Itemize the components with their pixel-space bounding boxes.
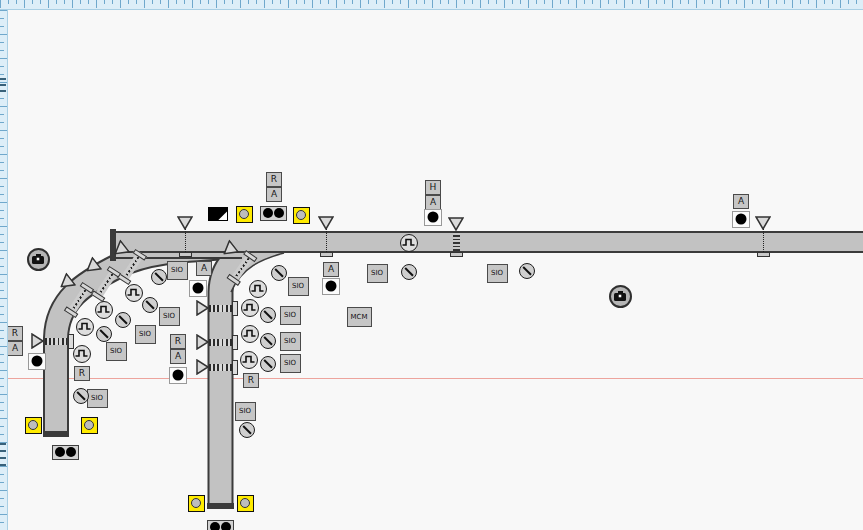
ruler-section-mark — [0, 84, 6, 86]
slash-icon — [522, 266, 531, 275]
indicator-dot-box[interactable] — [322, 278, 340, 295]
slash-detector-symbol[interactable] — [271, 265, 287, 281]
pulse-waveform-icon — [250, 281, 265, 296]
lamp-ring-icon — [28, 420, 38, 430]
sio-module-box[interactable]: SIO — [280, 332, 301, 351]
slash-detector-symbol[interactable] — [73, 388, 89, 404]
yellow-lamp-marker[interactable] — [236, 206, 253, 223]
double-indicator-box[interactable] — [260, 206, 287, 221]
signal-box-R[interactable]: R — [170, 334, 186, 349]
detector-bracket[interactable] — [232, 360, 238, 375]
double-indicator-box[interactable] — [52, 445, 79, 460]
slash-icon — [154, 272, 163, 281]
detector-trigger-triangle[interactable] — [196, 359, 209, 375]
detector-hatch-band[interactable] — [453, 232, 460, 251]
sio-module-box[interactable]: SIO — [159, 307, 180, 326]
slash-icon — [263, 336, 272, 345]
detector-road-cap[interactable] — [450, 252, 463, 257]
pulse-detector-symbol[interactable] — [400, 234, 418, 252]
sio-module-box[interactable]: SIO — [288, 277, 309, 296]
triangle-icon — [318, 216, 334, 230]
sio-module-box[interactable]: SIO — [87, 389, 108, 408]
vms-flag-icon[interactable] — [208, 207, 228, 221]
pulse-waveform-icon — [74, 346, 89, 361]
signal-box-R[interactable]: R — [243, 373, 259, 388]
pulse-waveform-icon — [242, 326, 257, 341]
pulse-waveform-icon — [77, 319, 92, 334]
slash-icon — [242, 425, 251, 434]
sio-module-box[interactable]: SIO — [367, 264, 388, 283]
ruler-section-mark — [0, 450, 6, 452]
signal-box-A[interactable]: A — [196, 261, 212, 276]
ruler-section-mark — [0, 443, 6, 445]
slash-icon — [99, 329, 108, 338]
black-dot-icon — [326, 281, 337, 292]
sio-module-box[interactable]: SIO — [135, 325, 156, 344]
pulse-detector-symbol[interactable] — [249, 280, 267, 298]
indicator-dot-box[interactable] — [732, 211, 750, 228]
signal-head-triangle[interactable] — [755, 216, 771, 230]
signal-drop-line — [185, 229, 186, 252]
yellow-lamp-marker[interactable] — [188, 495, 205, 512]
sio-module-box[interactable]: SIO — [106, 342, 127, 361]
detector-bracket[interactable] — [232, 301, 238, 316]
road-branch-left-end-cap — [43, 431, 69, 437]
detector-bracket[interactable] — [68, 334, 74, 349]
detector-road-cap[interactable] — [179, 252, 192, 257]
signal-box-H[interactable]: H — [425, 180, 441, 195]
lamp-ring-icon — [239, 209, 249, 219]
pulse-detector-symbol[interactable] — [240, 351, 258, 369]
signal-drop-line — [763, 229, 764, 252]
yellow-lamp-marker[interactable] — [81, 417, 98, 434]
signal-head-triangle[interactable] — [448, 217, 464, 231]
signal-box-A[interactable]: A — [733, 194, 749, 209]
slash-detector-symbol[interactable] — [401, 264, 417, 280]
lamp-ring-icon — [296, 210, 306, 220]
black-dot-icon — [66, 447, 76, 457]
pulse-detector-symbol[interactable] — [125, 284, 143, 302]
slash-detector-symbol[interactable] — [151, 269, 167, 285]
detector-trigger-triangle[interactable] — [196, 300, 209, 316]
indicator-dot-box[interactable] — [189, 280, 207, 297]
signal-box-R[interactable]: R — [74, 366, 90, 381]
camera-icon[interactable] — [609, 285, 632, 308]
detector-bracket[interactable] — [232, 335, 238, 350]
pulse-waveform-icon — [126, 285, 141, 300]
detector-band[interactable] — [209, 364, 232, 371]
ruler-section-mark — [0, 90, 6, 92]
pulse-waveform-icon — [242, 300, 257, 315]
black-dot-icon — [173, 370, 184, 381]
black-dot-icon — [221, 522, 231, 530]
detector-trigger-triangle[interactable] — [196, 334, 209, 350]
black-dot-icon — [263, 208, 273, 218]
sio-module-box[interactable]: SIO — [235, 402, 256, 421]
slash-detector-symbol[interactable] — [519, 263, 535, 279]
double-indicator-box[interactable] — [207, 520, 234, 530]
signal-box-A[interactable]: A — [323, 262, 339, 277]
signal-box-A[interactable]: A — [425, 195, 441, 210]
black-dot-icon — [736, 214, 747, 225]
lamp-ring-icon — [191, 498, 201, 508]
slash-detector-symbol[interactable] — [260, 356, 276, 372]
pulse-detector-symbol[interactable] — [95, 301, 113, 319]
slash-icon — [263, 310, 272, 319]
slash-detector-symbol[interactable] — [142, 297, 158, 313]
indicator-dot-box[interactable] — [424, 209, 442, 226]
signal-box-R[interactable]: R — [7, 326, 23, 341]
yellow-lamp-marker[interactable] — [25, 417, 42, 434]
triangle-icon — [755, 216, 771, 230]
indicator-dot-box[interactable] — [169, 367, 187, 384]
triangle-icon — [448, 217, 464, 231]
indicator-dot-box[interactable] — [28, 353, 46, 370]
signal-box-A[interactable]: A — [266, 187, 282, 202]
triangle-icon — [31, 333, 44, 349]
diagram-canvas[interactable]: RAHAAAARARARRSIOSIOSIOSIOSIOSIOSIOSIOSIO… — [0, 0, 863, 530]
signal-head-triangle[interactable] — [318, 216, 334, 230]
yellow-lamp-marker[interactable] — [293, 207, 310, 224]
ruler-section-mark — [0, 464, 6, 466]
ruler-section-mark — [0, 457, 6, 459]
camera-icon[interactable] — [27, 248, 50, 271]
detector-trigger-triangle[interactable] — [31, 333, 44, 349]
pulse-waveform-icon — [241, 352, 256, 367]
sio-module-box[interactable]: SIO — [280, 306, 301, 325]
lamp-ring-icon — [84, 420, 94, 430]
detector-band[interactable] — [209, 305, 232, 312]
slash-detector-symbol[interactable] — [260, 307, 276, 323]
signal-head-triangle[interactable] — [177, 216, 193, 230]
signal-box-R[interactable]: R — [266, 172, 282, 187]
triangle-icon — [177, 216, 193, 230]
slash-detector-symbol[interactable] — [96, 326, 112, 342]
slash-icon — [404, 267, 413, 276]
signal-box-A[interactable]: A — [7, 341, 23, 356]
pulse-detector-symbol[interactable] — [76, 318, 94, 336]
black-dot-icon — [55, 447, 65, 457]
pulse-detector-symbol[interactable] — [241, 325, 259, 343]
horizontal-ruler[interactable] — [0, 0, 863, 10]
detector-road-cap[interactable] — [757, 252, 770, 257]
signal-box-A[interactable]: A — [170, 349, 186, 364]
slash-icon — [263, 359, 272, 368]
slash-detector-symbol[interactable] — [260, 333, 276, 349]
road-branch-middle-end-cap — [207, 503, 234, 509]
black-dot-icon — [274, 208, 284, 218]
pulse-detector-symbol[interactable] — [73, 345, 91, 363]
signal-drop-line — [326, 229, 327, 252]
triangle-icon — [196, 300, 209, 316]
pulse-waveform-icon — [96, 302, 111, 317]
slash-icon — [118, 315, 127, 324]
sio-module-box[interactable]: SIO — [487, 264, 508, 283]
detector-band[interactable] — [45, 338, 67, 345]
triangle-icon — [196, 334, 209, 350]
sio-module-box[interactable]: SIO — [280, 354, 301, 373]
ruler-section-mark — [0, 78, 6, 80]
black-dot-icon — [32, 356, 43, 367]
lamp-ring-icon — [240, 498, 250, 508]
vertical-ruler[interactable] — [0, 10, 8, 530]
sio-module-box[interactable]: SIO — [167, 261, 188, 280]
detector-band[interactable] — [209, 339, 232, 346]
pulse-detector-symbol[interactable] — [241, 299, 259, 317]
slash-icon — [76, 391, 85, 400]
slash-detector-symbol[interactable] — [115, 312, 131, 328]
triangle-icon — [196, 359, 209, 375]
slash-icon — [274, 268, 283, 277]
mcm-module-box[interactable]: MCM — [347, 307, 372, 327]
black-dot-icon — [193, 283, 204, 294]
slash-icon — [145, 300, 154, 309]
yellow-lamp-marker[interactable] — [237, 495, 254, 512]
detector-road-cap[interactable] — [320, 252, 333, 257]
slash-detector-symbol[interactable] — [239, 422, 255, 438]
black-dot-icon — [428, 212, 439, 223]
pulse-waveform-icon — [401, 235, 416, 250]
black-dot-icon — [210, 522, 220, 530]
